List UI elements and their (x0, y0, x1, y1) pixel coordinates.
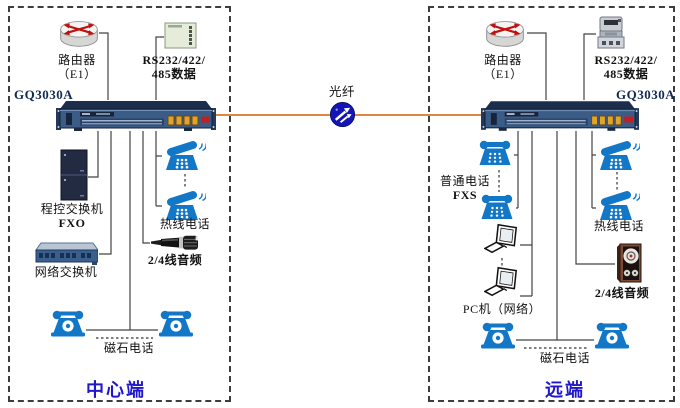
fiber-globe-icon (329, 101, 356, 128)
gq3030a-chassis-icon (481, 99, 639, 133)
hotline-label-right: 热线电话 (586, 219, 652, 233)
serial-data-label: RS232/422/ 485数据 (136, 53, 212, 81)
pc-icon (484, 222, 520, 256)
magneto-label-right: 磁石电话 (532, 351, 598, 365)
microphone-icon (150, 234, 200, 252)
router-label: 路由器 （E1） (45, 53, 109, 81)
remote-site-title: 远端 (520, 376, 610, 402)
serial-data-meter-icon (596, 16, 626, 52)
magneto-phone-icon (594, 321, 630, 349)
magneto-phone-icon (50, 309, 86, 337)
desk-phone-icon (476, 139, 514, 167)
hotline-phone-icon (596, 140, 640, 172)
serial-data-device-icon (164, 22, 198, 50)
magneto-label-left: 磁石电话 (96, 341, 162, 355)
hotline-phone-icon (162, 140, 206, 172)
fiber-label: 光纤 (322, 85, 362, 99)
lan-switch-label: 网络交换机 (33, 265, 99, 279)
audio-label-right: 2/4线音频 (584, 286, 660, 300)
pbx-label: 程控交换机 FXO (34, 202, 110, 230)
serial-data-label: RS232/422/ 485数据 (588, 53, 664, 81)
speaker-icon (615, 242, 643, 284)
pc-label: PC机（网络） (456, 302, 548, 316)
plain-phone-label: 普通电话 FXS (434, 174, 496, 202)
ethernet-switch-icon (34, 240, 98, 266)
network-diagram: 路由器 （E1） RS232/422/ 485数据 GQ3030A 程控交换机 … (0, 0, 680, 408)
magneto-phone-icon (158, 309, 194, 337)
gq3030a-label-right: GQ3030A (616, 87, 675, 103)
pc-icon (484, 265, 520, 299)
magneto-phone-icon (480, 321, 516, 349)
pbx-cabinet-icon (60, 149, 88, 201)
gq3030a-chassis-icon (56, 99, 216, 133)
hotline-label-left: 热线电话 (152, 217, 218, 231)
gq3030a-label-left: GQ3030A (14, 87, 73, 103)
audio-label-left: 2/4线音频 (137, 253, 213, 267)
router-icon (483, 14, 527, 52)
router-label: 路由器 （E1） (471, 53, 535, 81)
center-site-title: 中心端 (76, 376, 156, 402)
hotline-phone-icon (596, 190, 640, 222)
router-icon (57, 14, 101, 52)
